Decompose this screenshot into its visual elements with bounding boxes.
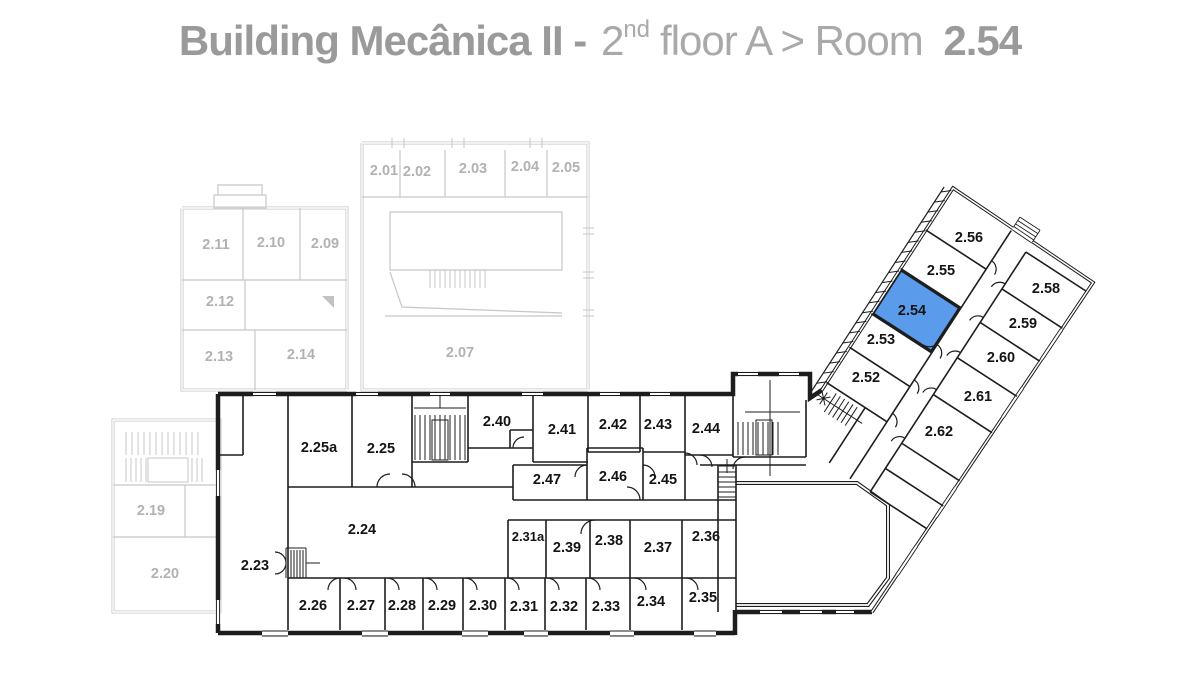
floor-plan: 2.01 2.02 2.03 2.04 2.05 2.11 2.10 2.09 …: [0, 0, 1200, 674]
room-label-2-03: 2.03: [459, 161, 487, 177]
room-label-2-62: 2.62: [925, 424, 953, 440]
room-label-2-42: 2.42: [599, 417, 627, 433]
room-label-2-56: 2.56: [955, 230, 983, 246]
room-label-2-30: 2.30: [469, 598, 497, 614]
room-label-2-25: 2.25: [367, 441, 395, 457]
room-label-2-53: 2.53: [867, 332, 895, 348]
room-label-2-35: 2.35: [689, 590, 717, 606]
room-label-2-44: 2.44: [692, 421, 720, 437]
room-label-2-54: 2.54: [898, 303, 926, 319]
room-label-2-31: 2.31: [510, 599, 538, 615]
room-label-2-55: 2.55: [927, 263, 955, 279]
room-label-2-47: 2.47: [533, 472, 561, 488]
room-label-2-59: 2.59: [1009, 316, 1037, 332]
room-label-2-40: 2.40: [483, 414, 511, 430]
room-label-2-31a: 2.31a: [512, 529, 545, 544]
room-label-2-01: 2.01: [370, 163, 398, 179]
room-label-2-12: 2.12: [206, 294, 234, 310]
page: Building Mecânica II - 2ndfloor A > Room…: [0, 0, 1200, 674]
room-label-2-61: 2.61: [964, 389, 992, 405]
room-label-2-29: 2.29: [428, 598, 456, 614]
room-label-2-28: 2.28: [388, 598, 416, 614]
room-label-2-14: 2.14: [287, 347, 315, 363]
room-label-2-34: 2.34: [637, 594, 665, 610]
room-label-2-33: 2.33: [592, 599, 620, 615]
room-label-2-26: 2.26: [299, 598, 327, 614]
room-label-2-46: 2.46: [599, 469, 627, 485]
room-label-2-04: 2.04: [511, 159, 539, 175]
wing-plan: [728, 174, 1101, 616]
room-label-2-32: 2.32: [550, 599, 578, 615]
room-label-2-27: 2.27: [347, 598, 375, 614]
room-label-2-02: 2.02: [403, 164, 431, 180]
room-label-2-25a: 2.25a: [301, 440, 338, 456]
room-label-2-38: 2.38: [595, 533, 623, 549]
room-label-2-36: 2.36: [692, 529, 720, 545]
room-label-2-19: 2.19: [137, 503, 165, 519]
room-label-2-45: 2.45: [649, 472, 677, 488]
room-label-2-13: 2.13: [205, 349, 233, 365]
room-label-2-58: 2.58: [1032, 281, 1060, 297]
room-label-2-10: 2.10: [257, 235, 285, 251]
entrance-marker-icon: [322, 296, 334, 308]
room-label-2-52: 2.52: [852, 370, 880, 386]
room-label-2-43: 2.43: [644, 417, 672, 433]
room-label-2-37: 2.37: [644, 540, 672, 556]
room-label-2-07: 2.07: [446, 345, 474, 361]
room-label-2-24: 2.24: [348, 522, 376, 538]
room-label-2-11: 2.11: [202, 237, 229, 253]
room-labels: 2.01 2.02 2.03 2.04 2.05 2.11 2.10 2.09 …: [137, 159, 1060, 615]
room-label-2-60: 2.60: [987, 350, 1015, 366]
room-label-2-20: 2.20: [151, 566, 179, 582]
room-label-2-41: 2.41: [548, 422, 576, 438]
room-label-2-05: 2.05: [552, 160, 580, 176]
room-label-2-09: 2.09: [311, 236, 339, 252]
room-label-2-23: 2.23: [241, 558, 269, 574]
room-label-2-39: 2.39: [553, 540, 581, 556]
main-plan-walls: [217, 373, 889, 637]
